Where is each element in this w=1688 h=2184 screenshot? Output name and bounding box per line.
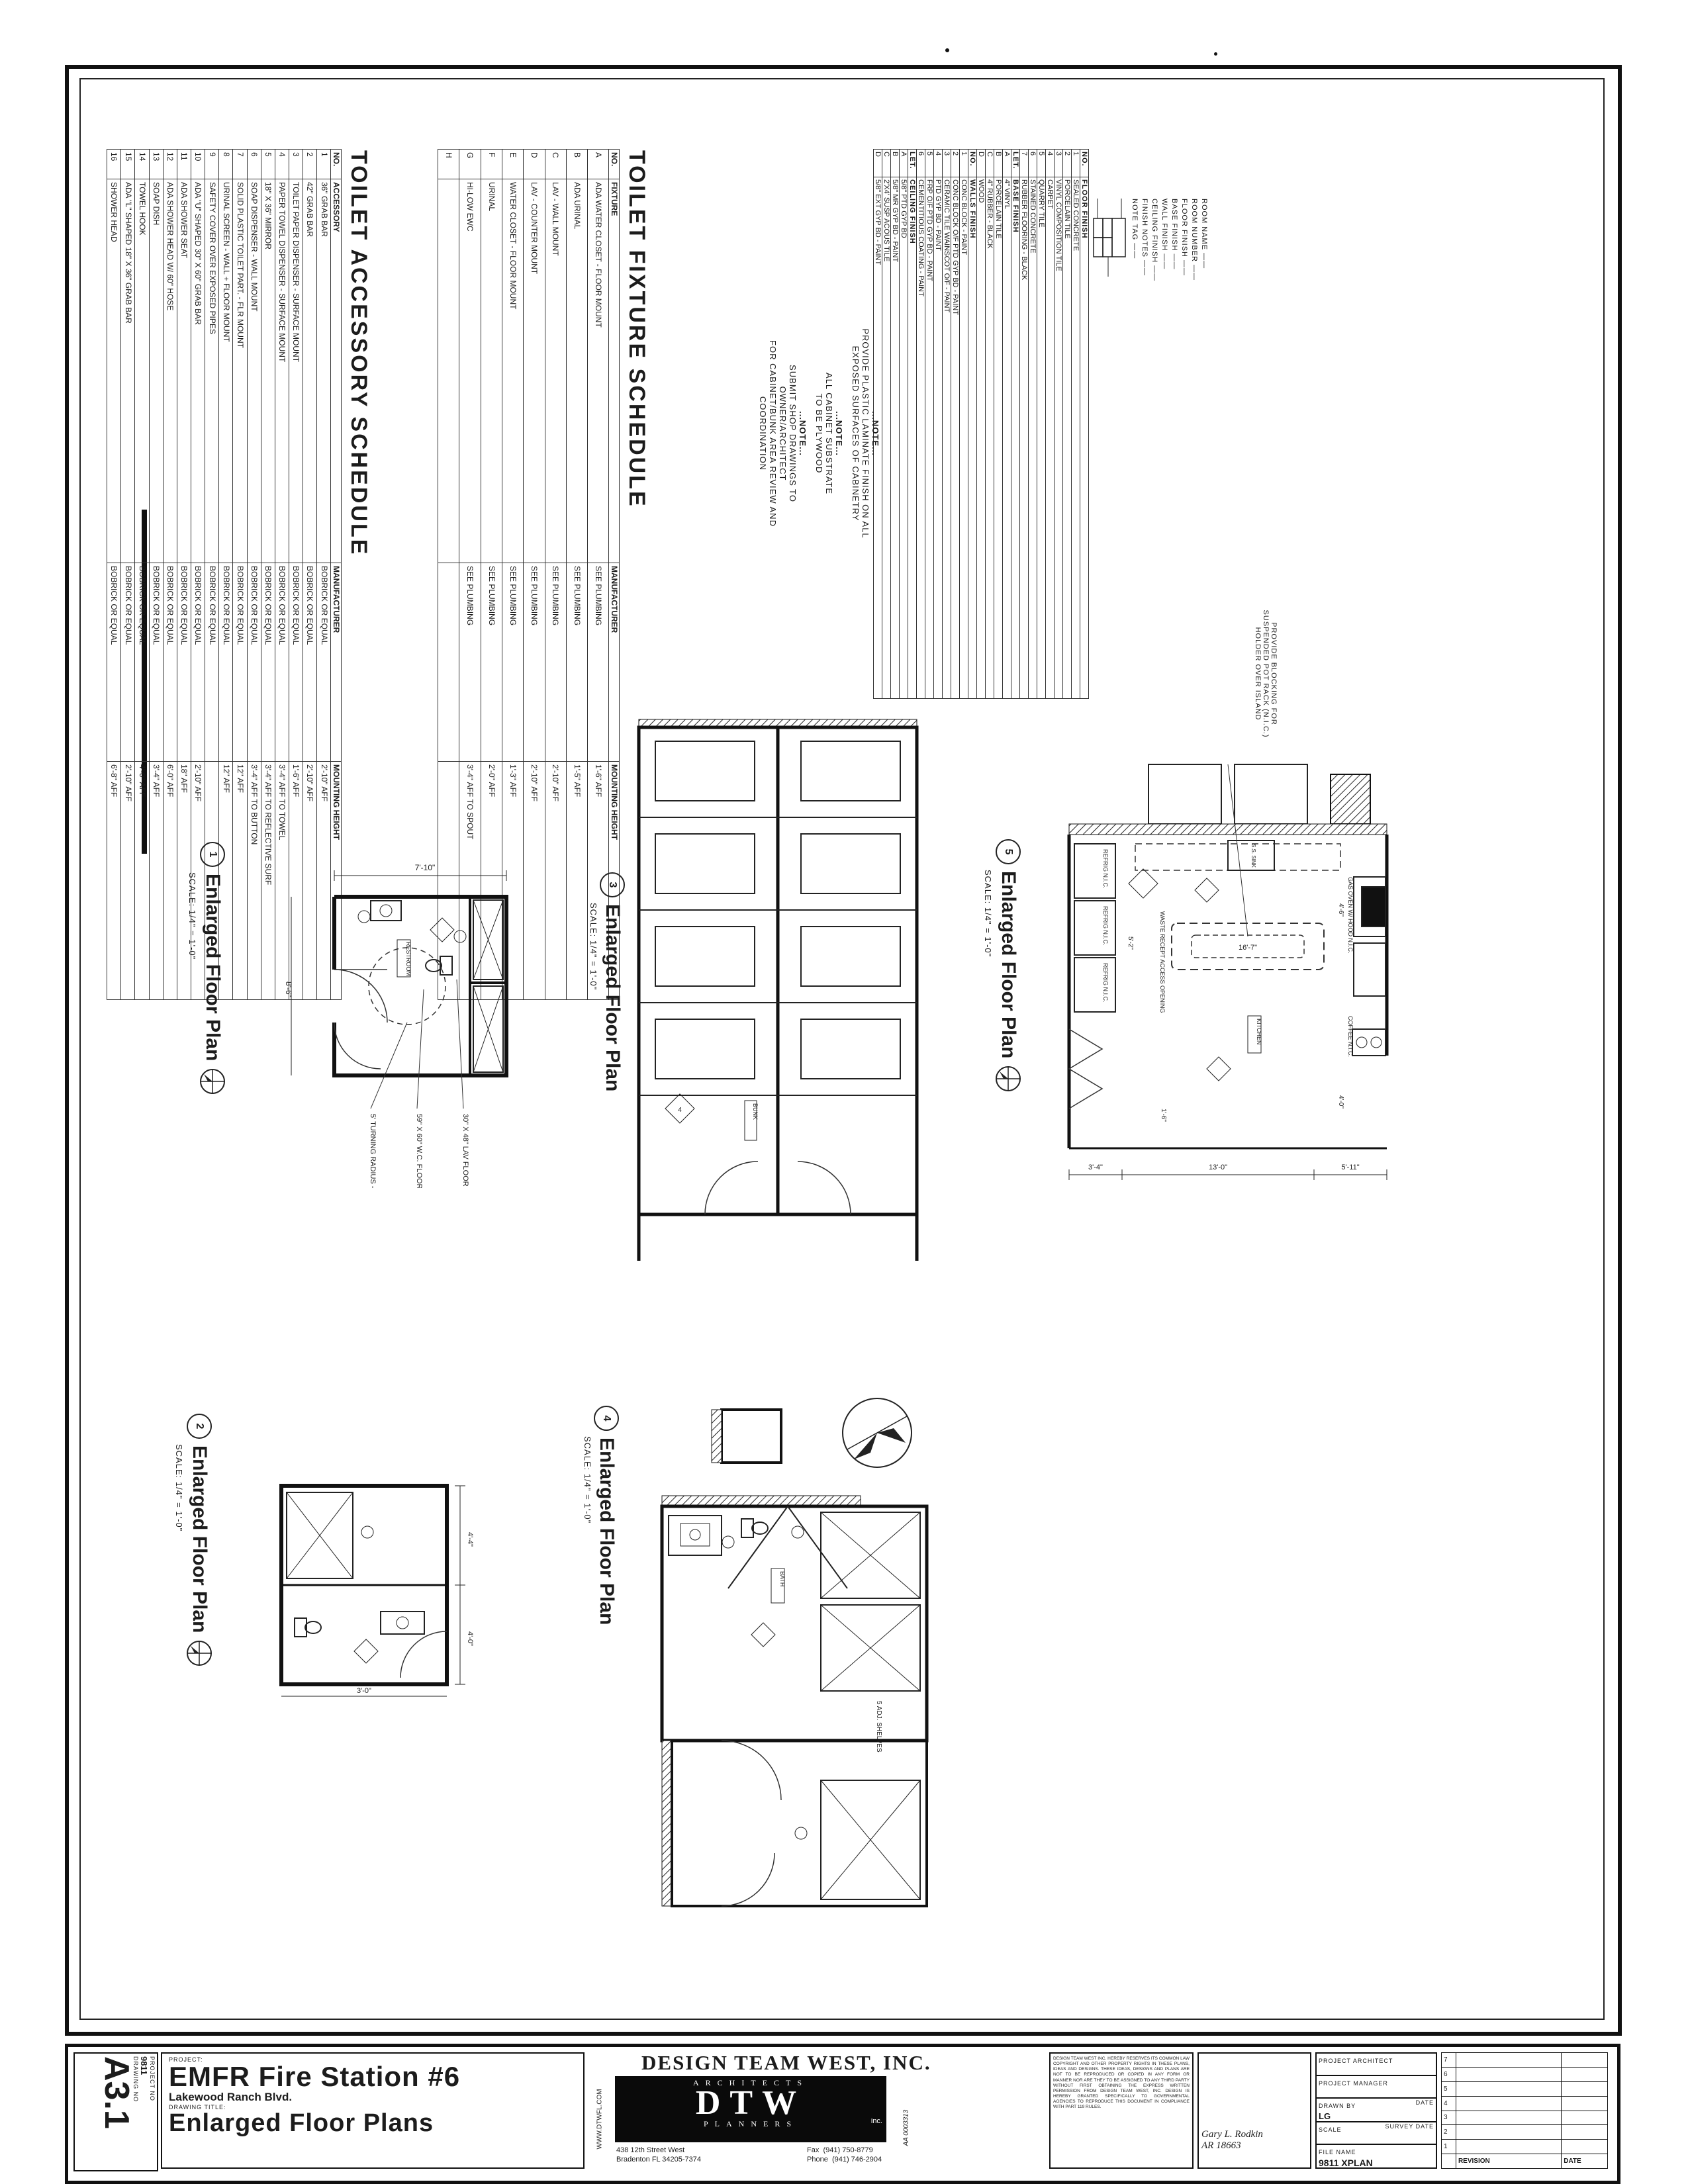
- scan-artifact: [945, 48, 949, 52]
- cell: SHOWER HEAD: [107, 179, 121, 563]
- cell: 5: [925, 150, 934, 177]
- finish-section-header: LET.BASE FINISH: [1011, 150, 1020, 699]
- svg-text:BATH: BATH: [779, 1571, 786, 1586]
- plan-title: Enlarged Floor Plan: [601, 904, 624, 1091]
- note-head: ...NOTE...: [834, 291, 844, 576]
- date-label: DATE: [1416, 2099, 1434, 2106]
- svg-text:5 ADJ. SHELVES: 5 ADJ. SHELVES: [875, 1701, 882, 1752]
- cell: 8: [219, 150, 233, 179]
- svg-text:4'-0": 4'-0": [1337, 1095, 1344, 1109]
- plan-number-badge: 3: [600, 872, 625, 897]
- firm-name: DESIGN TEAM WEST, INC.: [641, 2051, 931, 2075]
- cell: SAFETY COVER OVER EXPOSED PIPES: [205, 179, 219, 563]
- cell: 2'X4' SUSP ACOUS TILE: [882, 177, 891, 699]
- cell: [1456, 2140, 1561, 2154]
- cell: [1456, 2096, 1561, 2111]
- cell: RUBBER FLOORING - BLACK: [1020, 177, 1029, 699]
- finish-row: BPORCELAIN TILE: [994, 150, 1003, 699]
- cell: MANUFACTURER: [609, 563, 620, 762]
- plan-label-2: 2 Enlarged Floor Plan SCALE: 1/4" = 1'-0…: [152, 1414, 213, 1705]
- finish-row: C4" RUBBER - BLACK: [986, 150, 994, 699]
- project-block: PROJECT: EMFR Fire Station #6 Lakewood R…: [161, 2052, 585, 2169]
- fields-block: PROJECT ARCHITECT PROJECT MANAGER DRAWN …: [1315, 2052, 1437, 2169]
- cell: 1: [1442, 2140, 1456, 2154]
- cell: 4" VINYL: [1003, 177, 1011, 699]
- cell: C: [545, 150, 566, 179]
- cell: BOBRICK OR EQUAL: [135, 563, 149, 762]
- cell: PAPER TOWEL DISPENSER - SURFACE MOUNT: [275, 179, 289, 563]
- cell: [1562, 2096, 1608, 2111]
- svg-text:1'-6": 1'-6": [1160, 1109, 1167, 1122]
- table-row: CLAV - WALL MOUNTSEE PLUMBING2'-10" AFF: [545, 150, 566, 1000]
- cell: SOAP DISH: [149, 179, 163, 563]
- cell: 7: [1442, 2053, 1456, 2068]
- cell: ACCESSORY: [331, 179, 342, 563]
- cell: BOBRICK OR EQUAL: [149, 563, 163, 762]
- cell: 5: [1442, 2081, 1456, 2096]
- cell: 3: [943, 150, 951, 177]
- file-name-value: 9811 XPLAN: [1319, 2158, 1434, 2168]
- architect-signature: Gary L. Rodkin: [1201, 2129, 1307, 2140]
- floor-plan-3-bunks: 4 BUNK: [626, 711, 930, 1267]
- cell: F: [481, 150, 502, 179]
- legend-item: NOTE TAG ——: [1131, 199, 1139, 510]
- finish-row: 2CONC BLOCK O/F PTD GYP BD - PAINT: [951, 150, 960, 699]
- cell: NO.: [331, 150, 342, 179]
- cell: SEE PLUMBING: [566, 563, 587, 762]
- key-header: NO.: [1080, 150, 1089, 177]
- note-body: ALL CABINET SUBSTRATE TO BE PLYWOOD: [814, 291, 834, 576]
- firm-address: 438 12th Street West Bradenton FL 34205-…: [616, 2146, 701, 2165]
- cell: SEE PLUMBING: [459, 563, 481, 762]
- cell: PTD GYP BD - PAINT: [934, 177, 943, 699]
- cell: 7: [233, 150, 247, 179]
- cell: 2'-10" AFF: [121, 762, 135, 1000]
- finish-row: 5FRP O/F PTD GYP BD - PAINT: [925, 150, 934, 699]
- cell: BOBRICK OR EQUAL: [163, 563, 177, 762]
- disclaimer-block: DESIGN TEAM WEST INC. HEREBY RESERVES IT…: [1049, 2052, 1194, 2169]
- north-arrow-icon: [994, 1065, 1022, 1093]
- svg-text:3'-4": 3'-4": [1088, 1163, 1103, 1171]
- cell: 3: [1055, 150, 1063, 177]
- cell: VINYL COMPOSITION TILE: [1055, 177, 1063, 699]
- cell: [1456, 2053, 1561, 2068]
- finish-row: 6CEMENTITIOUS COATING - PAINT: [917, 150, 925, 699]
- fax-label: Fax: [807, 2146, 819, 2154]
- cell: CONC BLOCK O/F PTD GYP BD - PAINT: [951, 177, 960, 699]
- cell: 4: [275, 150, 289, 179]
- note-head: ...NOTE...: [798, 291, 808, 576]
- floor-plan-5-kitchen: REFRIG N.I.C. REFRIG N.I.C. REFRIG N.I.C…: [1029, 738, 1427, 1201]
- cell: 5: [261, 150, 275, 179]
- drawing-number-block: PROJECT NO 9811 DRAWING NO A3.1: [73, 2052, 158, 2171]
- cell: [1456, 2111, 1561, 2125]
- cell: 4'-0" AFF: [135, 762, 149, 1000]
- cell: WOOD: [977, 177, 986, 699]
- cell: 3: [1442, 2111, 1456, 2125]
- svg-text:REFRIG N.I.C.: REFRIG N.I.C.: [1102, 849, 1109, 889]
- svg-text:16'-7": 16'-7": [1239, 944, 1257, 952]
- project-manager-label: PROJECT MANAGER: [1319, 2080, 1388, 2087]
- finish-row: 7RUBBER FLOORING - BLACK: [1020, 150, 1029, 699]
- svg-text:GAS OVEN W/ HOOD N.I.C.: GAS OVEN W/ HOOD N.I.C.: [1347, 877, 1354, 954]
- cell: PORCELAIN TILE: [1063, 177, 1072, 699]
- plan-number-badge: 5: [996, 839, 1021, 864]
- cell: FRP O/F PTD GYP BD - PAINT: [925, 177, 934, 699]
- cell: BOBRICK OR EQUAL: [275, 563, 289, 762]
- cell: SOLID PLASTIC TOILET PART. - FLR MOUNT: [233, 179, 247, 563]
- note-head: ...NOTE...: [870, 291, 880, 576]
- plan-label-3: 3 Enlarged Floor Plan SCALE: 1/4" = 1'-0…: [564, 872, 625, 1150]
- scan-artifact: [1214, 52, 1217, 56]
- cell: SEE PLUMBING: [545, 563, 566, 762]
- cell: ADA SHOWER HEAD W/ 60" HOSE: [163, 179, 177, 563]
- svg-text:S.S. SINK: S.S. SINK: [1250, 844, 1256, 868]
- finish-section-header: NO.WALLS FINISH: [968, 150, 977, 699]
- survey-date-label: SURVEY DATE: [1385, 2123, 1434, 2130]
- cell: [1442, 2154, 1456, 2169]
- cell: 2: [951, 150, 960, 177]
- finish-row: C2'X4' SUSP ACOUS TILE: [882, 150, 891, 699]
- plan-title: Enlarged Floor Plan: [997, 871, 1019, 1058]
- cell: [1562, 2053, 1608, 2068]
- cell: 3'-4" AFF: [149, 762, 163, 1000]
- revision-table: 7654321REVISIONDATE: [1441, 2052, 1608, 2169]
- plan-scale: SCALE: 1/4" = 1'-0": [583, 1436, 592, 1704]
- cell: SEALED CONCRETE: [1072, 177, 1080, 699]
- finish-tag-legend: ROOM NAME ——ROOM NUMBER ——FLOOR FINISH —…: [1096, 199, 1208, 510]
- project-no: 9811: [139, 2056, 149, 2167]
- plan-scale: SCALE: 1/4" = 1'-0": [983, 870, 993, 1157]
- cell: G: [459, 150, 481, 179]
- cell: C: [986, 150, 994, 177]
- cell: SEE PLUMBING: [588, 563, 609, 762]
- finish-tag-diagram: [1091, 199, 1128, 278]
- cell: BOBRICK OR EQUAL: [317, 563, 331, 762]
- finish-schedule-table: NO.FLOOR FINISH1SEALED CONCRETE2PORCELAI…: [873, 149, 1089, 699]
- svg-text:13'-0": 13'-0": [1209, 1163, 1227, 1171]
- legend-item: FLOOR FINISH ——: [1180, 199, 1188, 510]
- key-header: NO.: [968, 150, 977, 177]
- cell: 36" GRAB BAR: [317, 179, 331, 563]
- revision-block: 7654321REVISIONDATE: [1441, 2052, 1608, 2169]
- plan-label-5: 5 Enlarged Floor Plan SCALE: 1/4" = 1'-0…: [961, 839, 1022, 1157]
- plan-label-4: 4 Enlarged Floor Plan SCALE: 1/4" = 1'-0…: [558, 1406, 619, 1704]
- cell: LAV - COUNTER MOUNT: [524, 179, 545, 563]
- cell: STAINED CONCRETE: [1029, 177, 1037, 699]
- firm-logo-dtw: DTW: [615, 2088, 886, 2119]
- cell: SEE PLUMBING: [481, 563, 502, 762]
- plan-number-badge: 4: [594, 1406, 619, 1431]
- cell: NO.: [609, 150, 620, 179]
- legend-item: WALL FINISH ——: [1160, 199, 1168, 510]
- plan-scale: SCALE: 1/4" = 1'-0": [174, 1444, 184, 1705]
- cell: BOBRICK OR EQUAL: [289, 563, 303, 762]
- cell: 3: [289, 150, 303, 179]
- seal-block: Gary L. Rodkin AR 18663: [1197, 2052, 1311, 2169]
- key-header: LET.: [1011, 150, 1020, 177]
- scanned-drawing-sheet: TOILET ACCESSORY SCHEDULE NO.ACCESSORYMA…: [0, 0, 1688, 2184]
- drawn-by-value: LG: [1319, 2111, 1434, 2121]
- table-row: 7SOLID PLASTIC TOILET PART. - FLR MOUNTB…: [233, 150, 247, 1000]
- cell: SEE PLUMBING: [524, 563, 545, 762]
- firm-logo: ARCHITECTS DTW PLANNERS inc.: [615, 2076, 886, 2142]
- drawn-by-label: DRAWN BY: [1319, 2103, 1356, 2109]
- cell: D: [874, 150, 882, 177]
- north-arrow-icon: [199, 1068, 226, 1095]
- legend-item: FINISH NOTES ——: [1141, 199, 1149, 510]
- plan-scale: SCALE: 1/4" = 1'-0": [187, 872, 197, 1133]
- cell: D: [524, 150, 545, 179]
- cell: CERAMIC TILE WAINSCOT O/F - PAINT: [943, 177, 951, 699]
- svg-text:4: 4: [678, 1107, 682, 1114]
- svg-text:REFRIG N.I.C.: REFRIG N.I.C.: [1102, 963, 1109, 1003]
- svg-text:REFRIG N.I.C.: REFRIG N.I.C.: [1102, 906, 1109, 946]
- cell: URINAL: [481, 179, 502, 563]
- table-row: 14TOWEL HOOKBOBRICK OR EQUAL4'-0" AFF: [135, 150, 149, 1000]
- finish-row: 3VINYL COMPOSITION TILE: [1055, 150, 1063, 699]
- cell: BOBRICK OR EQUAL: [303, 563, 317, 762]
- cell: TOILET PAPER DISPENSER - SURFACE MOUNT: [289, 179, 303, 563]
- svg-text:4'-6": 4'-6": [1337, 903, 1344, 917]
- cell: BOBRICK OR EQUAL: [191, 563, 205, 762]
- plan-title: Enlarged Floor Plan: [188, 1445, 211, 1633]
- north-arrow-icon: [185, 1639, 213, 1667]
- cell: A: [588, 150, 609, 179]
- cell: BOBRICK OR EQUAL: [247, 563, 261, 762]
- cell: [1456, 2067, 1561, 2081]
- project-architect-label: PROJECT ARCHITECT: [1319, 2058, 1393, 2064]
- cell: E: [502, 150, 523, 179]
- cell: 4: [1442, 2096, 1456, 2111]
- cell: [438, 179, 459, 563]
- cell: 5/8" PTD GYP BD: [900, 177, 908, 699]
- cell: 2: [1442, 2125, 1456, 2140]
- finish-row: 1CONC BLOCK - PAINT: [960, 150, 968, 699]
- project-name: EMFR Fire Station #6: [169, 2063, 577, 2091]
- cell: A: [1003, 150, 1011, 177]
- cell: QUARRY TILE: [1037, 177, 1046, 699]
- revision-row: 4: [1442, 2096, 1608, 2111]
- svg-text:30" X 48" LAV FLOOR CLEARANCE: 30" X 48" LAV FLOOR CLEARANCE - TYP: [461, 1114, 469, 1188]
- cell: A: [900, 150, 908, 177]
- finish-row: A5/8" PTD GYP BD: [900, 150, 908, 699]
- svg-text:7'-10": 7'-10": [415, 863, 436, 872]
- cell: [1562, 2125, 1608, 2140]
- cell: 15: [121, 150, 135, 179]
- cell: D: [977, 150, 986, 177]
- cell: 4: [1046, 150, 1055, 177]
- plan-title: Enlarged Floor Plan: [201, 874, 224, 1061]
- plan-title: Enlarged Floor Plan: [595, 1437, 618, 1625]
- finish-row: 4PTD GYP BD - PAINT: [934, 150, 943, 699]
- finish-row: 4CARPET: [1046, 150, 1055, 699]
- firm-license: AA 0003313: [903, 2067, 910, 2146]
- svg-text:RESTROOM: RESTROOM: [405, 942, 412, 976]
- cell: [438, 563, 459, 762]
- cell: BOBRICK OR EQUAL: [205, 563, 219, 762]
- revision-row: 6: [1442, 2067, 1608, 2081]
- note-body: PROVIDE PLASTIC LAMINATE FINISH ON ALL E…: [851, 291, 870, 576]
- revision-row: 5: [1442, 2081, 1608, 2096]
- cell: 1: [317, 150, 331, 179]
- cell: ADA SHOWER SEAT: [177, 179, 191, 563]
- cell: 1: [960, 150, 968, 177]
- cell: 6: [1442, 2067, 1456, 2081]
- svg-text:WASTE RECEPT ACCESS OPENING: WASTE RECEPT ACCESS OPENING: [1159, 911, 1166, 1013]
- svg-text:BUNK: BUNK: [752, 1103, 759, 1120]
- cell: PORCELAIN TILE: [994, 177, 1003, 699]
- cell: 6: [1029, 150, 1037, 177]
- finish-row: 3CERAMIC TILE WAINSCOT O/F - PAINT: [943, 150, 951, 699]
- architect-license: AR 18663: [1201, 2140, 1307, 2152]
- finish-row: 6STAINED CONCRETE: [1029, 150, 1037, 699]
- cell: SOAP DISPENSER - WALL MOUNT: [247, 179, 261, 563]
- cell: ADA URINAL: [566, 179, 587, 563]
- cell: 5: [1037, 150, 1046, 177]
- note-body: SUBMIT SHOP DRAWINGS TO OWNER/ARCHITECT …: [758, 291, 798, 576]
- revision-row: 3: [1442, 2111, 1608, 2125]
- cell: 5/8" MR GYP BD - PAINT: [891, 177, 900, 699]
- plan-number-badge: 1: [200, 842, 225, 867]
- firm-phone-fax: Fax (941) 750-8779 Phone (941) 746-2904: [807, 2146, 882, 2165]
- cell: BOBRICK OR EQUAL: [233, 563, 247, 762]
- cell: 2: [303, 150, 317, 179]
- finish-row: DWOOD: [977, 150, 986, 699]
- disclaimer-text: DESIGN TEAM WEST INC. HEREBY RESERVES IT…: [1053, 2056, 1190, 2110]
- firm-website: WWW.DTWFL.COM: [596, 2064, 604, 2150]
- revision-header-row: REVISIONDATE: [1442, 2154, 1608, 2169]
- cell: B: [994, 150, 1003, 177]
- phone-label: Phone: [807, 2156, 828, 2163]
- cell: DATE: [1562, 2154, 1608, 2169]
- cell: BOBRICK OR EQUAL: [261, 563, 275, 762]
- firm-logo-inc: inc.: [871, 2117, 882, 2125]
- cell: C: [882, 150, 891, 177]
- finish-section-header: LET.CEILING FINISH: [908, 150, 917, 699]
- cell: MANUFACTURER: [331, 563, 342, 762]
- cell: URINAL SCREEN - WALL + FLOOR MOUNT: [219, 179, 233, 563]
- firm-block: DESIGN TEAM WEST, INC. WWW.DTWFL.COM ARC…: [588, 2050, 1045, 2175]
- floor-plan-2-restroom: 4'-4" 4'-0" 3'-0": [255, 1466, 480, 1704]
- project-address: Lakewood Ranch Blvd.: [169, 2091, 577, 2104]
- cell: CARPET: [1046, 177, 1055, 699]
- finish-row: 2PORCELAIN TILE: [1063, 150, 1072, 699]
- drawing-title: Enlarged Floor Plans: [169, 2111, 577, 2136]
- legend-item: CEILING FINISH ——: [1150, 199, 1158, 510]
- svg-text:4'-4": 4'-4": [466, 1532, 474, 1547]
- cell: 16: [107, 150, 121, 179]
- cell: BOBRICK OR EQUAL: [219, 563, 233, 762]
- cell: [1456, 2125, 1561, 2140]
- cell: 9: [205, 150, 219, 179]
- finish-row: 1SEALED CONCRETE: [1072, 150, 1080, 699]
- svg-text:5' TURNING RADIUS - TYP: 5' TURNING RADIUS - TYP: [369, 1114, 377, 1188]
- cell: FIXTURE: [609, 179, 620, 563]
- cell: 4: [934, 150, 943, 177]
- cell: ADA "L" SHAPED 18" X 36" GRAB BAR: [121, 179, 135, 563]
- revision-row: 7: [1442, 2053, 1608, 2068]
- floor-plan-1-restroom: 7'-10" 8'-6" RESTROOM 5: [271, 857, 536, 1188]
- cell: 7: [1020, 150, 1029, 177]
- svg-text:5'-2": 5'-2": [1127, 936, 1134, 950]
- table-row: 16SHOWER HEADBOBRICK OR EQUAL6'-8" AFF: [107, 150, 121, 1000]
- cell: B: [891, 150, 900, 177]
- cell: ADA "U" SHAPED 30" X 60" GRAB BAR: [191, 179, 205, 563]
- cell: 2: [1063, 150, 1072, 177]
- table-row: 15ADA "L" SHAPED 18" X 36" GRAB BARBOBRI…: [121, 150, 135, 1000]
- cell: REVISION: [1456, 2154, 1561, 2169]
- cell: [1562, 2111, 1608, 2125]
- scale-label: SCALE: [1319, 2126, 1342, 2133]
- svg-text:5'-11": 5'-11": [1341, 1163, 1359, 1171]
- section-name: WALLS FINISH: [968, 177, 977, 699]
- finish-row: 5QUARRY TILE: [1037, 150, 1046, 699]
- cell: 18" X 36" MIRROR: [261, 179, 275, 563]
- firm-address-1: 438 12th Street West: [616, 2146, 701, 2156]
- finish-row: A4" VINYL: [1003, 150, 1011, 699]
- legend-item: ROOM NAME ——: [1200, 199, 1208, 510]
- phone-number: (941) 746-2904: [832, 2156, 882, 2163]
- cell: SEE PLUMBING: [502, 563, 523, 762]
- cell: [1562, 2067, 1608, 2081]
- cell: H: [438, 150, 459, 179]
- table-row: 6SOAP DISPENSER - WALL MOUNTBOBRICK OR E…: [247, 150, 261, 1000]
- cell: [1456, 2081, 1561, 2096]
- cell: TOWEL HOOK: [135, 179, 149, 563]
- cell: 2'-10" AFF: [545, 762, 566, 1000]
- cell: [1562, 2081, 1608, 2096]
- section-name: CEILING FINISH: [908, 177, 917, 699]
- cell: [1562, 2140, 1608, 2154]
- plan-scale: SCALE: 1/4" = 1'-0": [588, 903, 598, 1150]
- svg-text:3'-0": 3'-0": [357, 1687, 371, 1695]
- svg-text:59" X 60" W.C. FLOOR CLEARANCE: 59" X 60" W.C. FLOOR CLEARANCE - TYP: [415, 1114, 423, 1188]
- project-no-label: PROJECT NO: [149, 2056, 156, 2167]
- finish-schedule: NO.FLOOR FINISH1SEALED CONCRETE2PORCELAI…: [890, 149, 1089, 698]
- floor-plan-4-bath: BATH 5 ADJ. SHELVES: [622, 1370, 933, 1926]
- cell: BOBRICK OR EQUAL: [107, 563, 121, 762]
- cell: LAV - WALL MOUNT: [545, 179, 566, 563]
- cell: 10: [191, 150, 205, 179]
- plan-label-1: 1 Enlarged Floor Plan SCALE: 1/4" = 1'-0…: [165, 842, 226, 1133]
- svg-text:4'-0": 4'-0": [466, 1631, 474, 1646]
- cell: CONC BLOCK - PAINT: [960, 177, 968, 699]
- firm-logo-planners: PLANNERS: [615, 2119, 886, 2131]
- title-block: PROJECT NO 9811 DRAWING NO A3.1 PROJECT:…: [65, 2044, 1620, 2184]
- cell: 14: [135, 150, 149, 179]
- section-name: BASE FINISH: [1011, 177, 1020, 699]
- cell: B: [566, 150, 587, 179]
- cell: 6: [247, 150, 261, 179]
- firm-address-2: Bradenton FL 34205-7374: [616, 2156, 701, 2165]
- cell: WATER CLOSET - FLOOR MOUNT: [502, 179, 523, 563]
- cell: 12: [163, 150, 177, 179]
- cabinetry-notes: ...NOTE... PROVIDE PLASTIC LAMINATE FINI…: [702, 285, 880, 569]
- cell: 4" RUBBER - BLACK: [986, 177, 994, 699]
- svg-text:8'-6": 8'-6": [284, 981, 293, 997]
- revision-row: 1: [1442, 2140, 1608, 2154]
- drawing-no: A3.1: [100, 2056, 132, 2167]
- fax-number: (941) 750-8779: [823, 2146, 872, 2154]
- cell: CEMENTITIOUS COATING - PAINT: [917, 177, 925, 699]
- revision-row: 2: [1442, 2125, 1608, 2140]
- legend-item: ROOM NUMBER ——: [1190, 199, 1198, 510]
- plan-number-badge: 2: [187, 1414, 212, 1439]
- cell: BOBRICK OR EQUAL: [177, 563, 191, 762]
- cell: HI-LOW EWC: [459, 179, 481, 563]
- cell: 6'-8" AFF: [107, 762, 121, 1000]
